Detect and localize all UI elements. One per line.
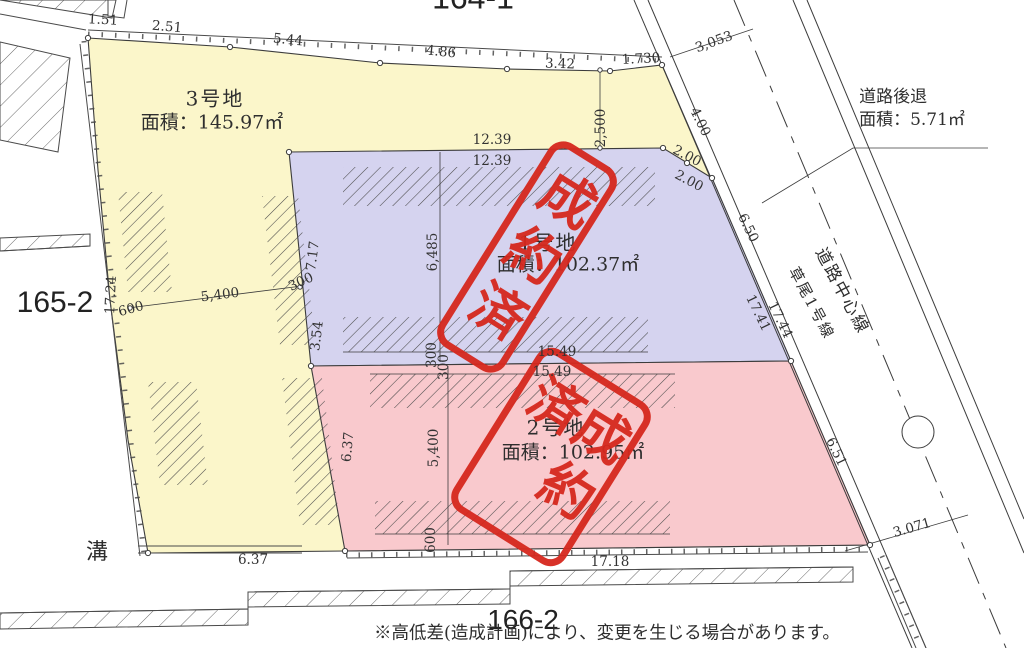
land-plot-map: 164-1 165-2 166-2 3号地 面積：145.97㎡ 1号地 面積：… <box>0 0 1024 648</box>
dimension-label: 600 <box>423 527 439 553</box>
dimension-label: 3.42 <box>545 55 576 72</box>
dimension-label: 6.37 <box>238 552 268 568</box>
dimension-label: 2.51 <box>151 18 182 37</box>
dimension-label: 15.49 <box>538 344 577 360</box>
dimension-label: 1.51 <box>88 11 119 29</box>
dimension-label: 15.49 <box>533 364 572 380</box>
lot-number-top: 164-1 <box>432 0 514 17</box>
setback-title: 道路後退 <box>859 86 965 109</box>
dimension-label: 5.44 <box>272 30 304 49</box>
ditch-label: 溝 <box>86 534 108 566</box>
lot3-area: 面積：145.97㎡ <box>141 108 283 135</box>
setback-label: 道路後退 面積：5.71㎡ <box>859 86 965 132</box>
dimension-label: 6.37 <box>339 431 358 462</box>
lot-number-left: 165-2 <box>17 286 94 320</box>
manhole-circle <box>902 416 934 448</box>
dimension-label: 17.24 <box>102 275 120 314</box>
caution-note: ※高低差(造成計画)により、変更を生じる場合があります。 <box>374 620 840 645</box>
dimension-label: 12.39 <box>473 153 512 169</box>
dimension-label: 2,500 <box>593 109 609 148</box>
dimension-label: 17.18 <box>591 554 630 570</box>
dimension-label: 1.730 <box>621 50 660 68</box>
dimension-label: 4.86 <box>425 42 457 61</box>
dimension-label: 5,400 <box>426 429 442 468</box>
dimension-label: 300 <box>436 354 452 380</box>
dimension-label: 12.39 <box>473 132 512 148</box>
setback-area: 面積：5.71㎡ <box>859 109 965 132</box>
dimension-label: 6,485 <box>425 233 441 272</box>
